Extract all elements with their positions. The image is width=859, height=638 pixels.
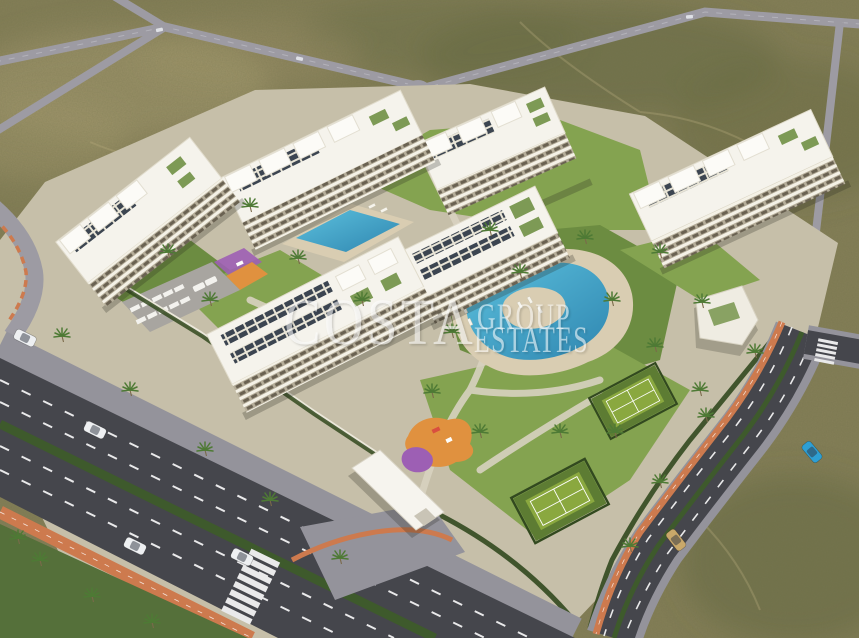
watermark-estates: ESTATES <box>474 320 589 361</box>
watermark-costa: COSTA <box>284 286 476 359</box>
watermark: COSTA GROUP ESTATES <box>284 286 589 361</box>
aerial-render-stage: COSTA GROUP ESTATES <box>0 0 859 638</box>
render-canvas: COSTA GROUP ESTATES <box>0 0 859 638</box>
